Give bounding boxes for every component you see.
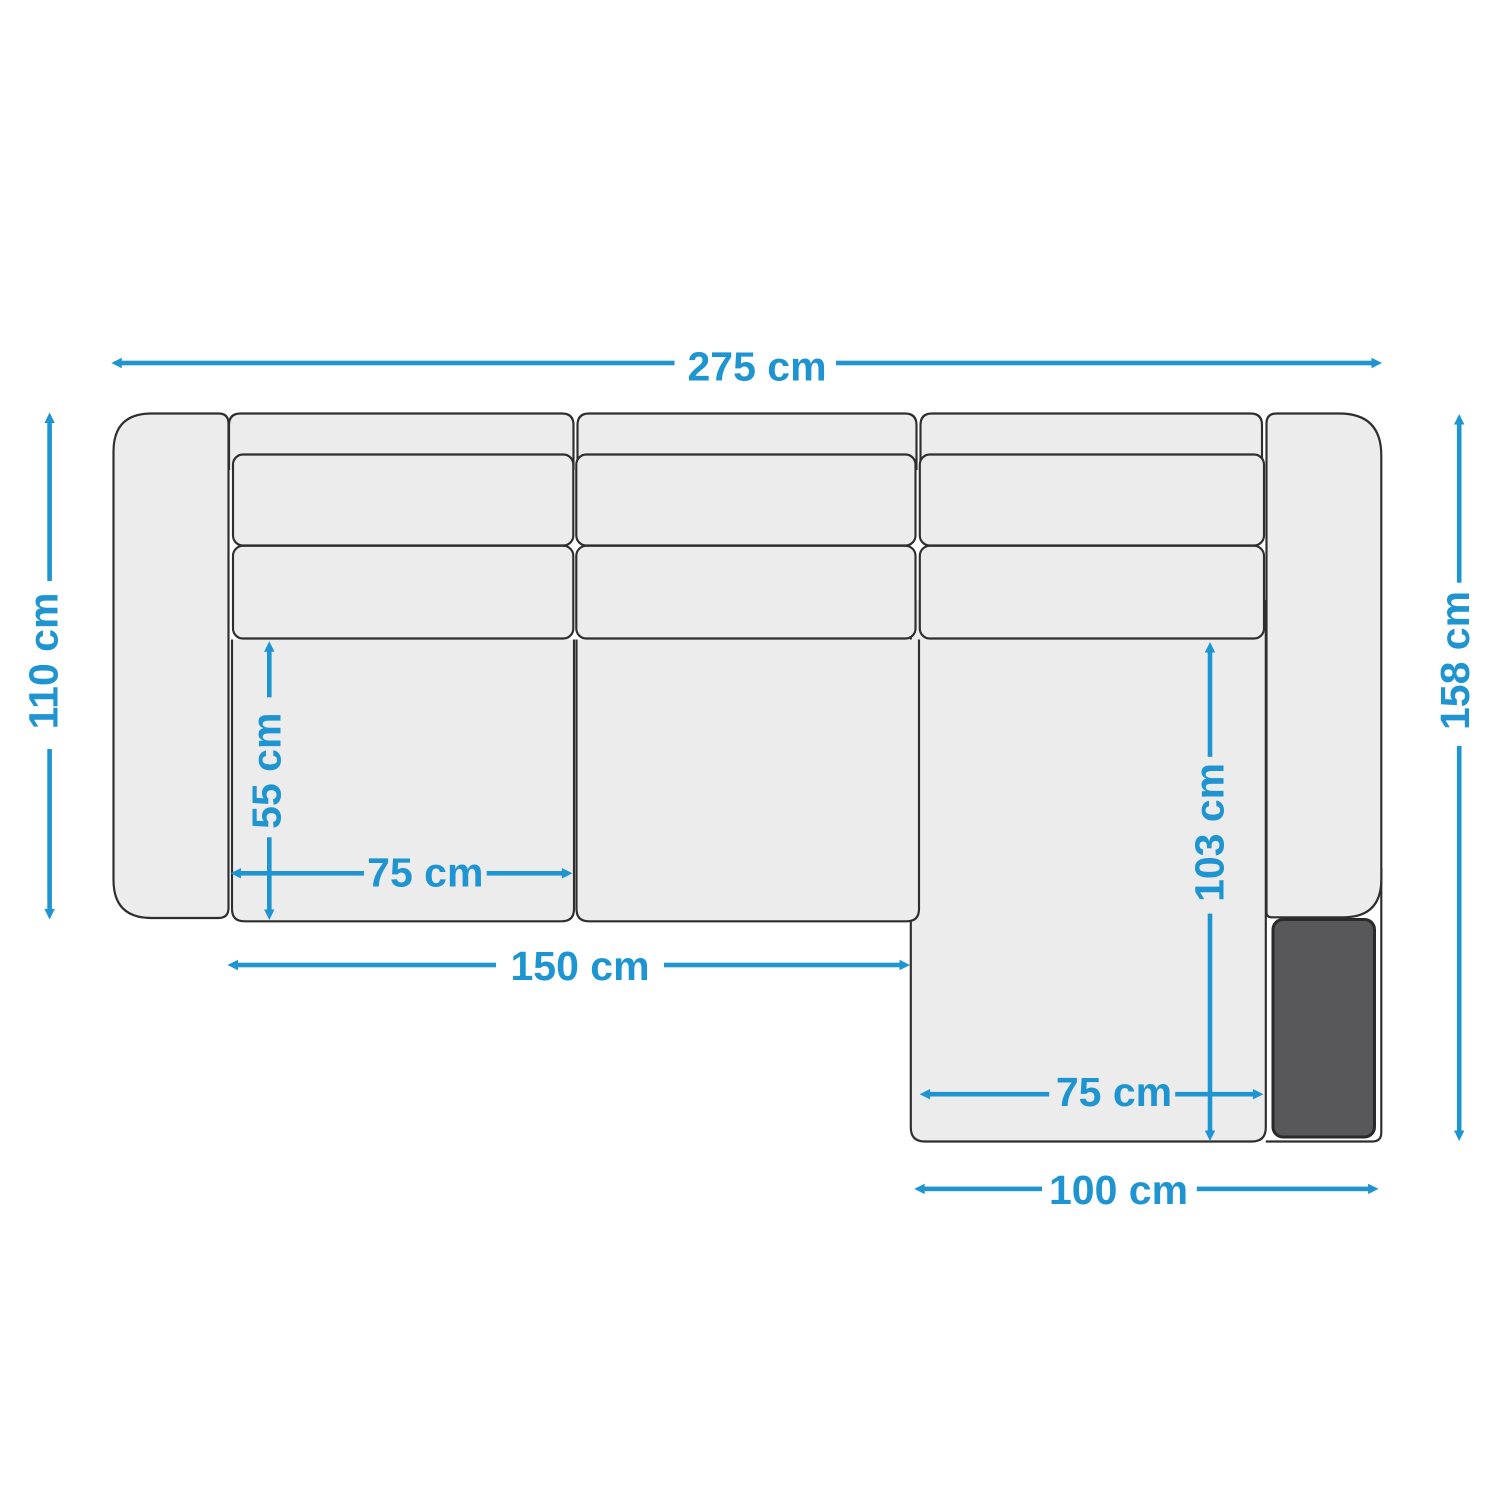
- svg-text:55 cm: 55 cm: [244, 713, 290, 829]
- svg-text:150 cm: 150 cm: [510, 943, 649, 989]
- svg-text:75 cm: 75 cm: [1056, 1069, 1172, 1115]
- svg-text:103 cm: 103 cm: [1187, 763, 1233, 902]
- svg-text:275 cm: 275 cm: [687, 344, 826, 390]
- svg-text:158 cm: 158 cm: [1432, 591, 1478, 730]
- svg-text:100 cm: 100 cm: [1049, 1167, 1188, 1213]
- svg-text:110 cm: 110 cm: [21, 593, 67, 730]
- svg-text:75 cm: 75 cm: [367, 850, 483, 896]
